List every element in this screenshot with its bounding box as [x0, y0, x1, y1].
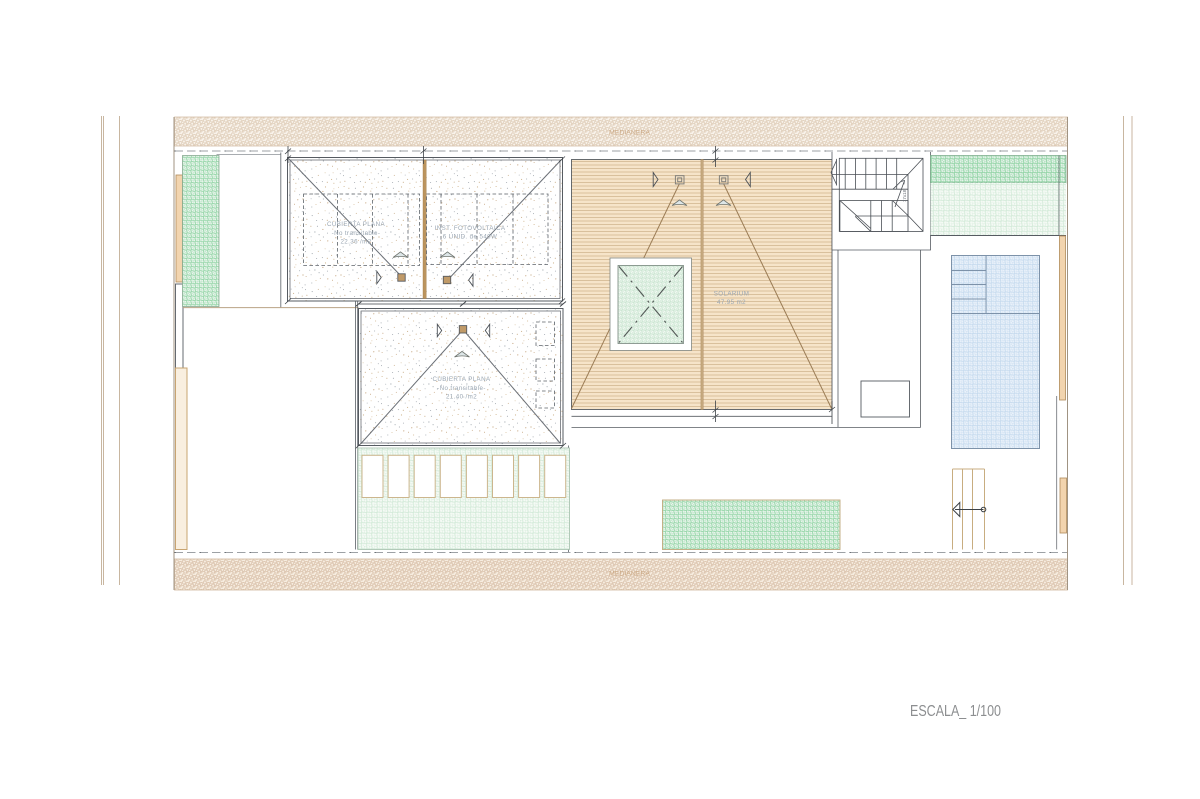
- svg-text:-No transitable-: -No transitable-: [437, 385, 486, 392]
- svg-text:22.36 /m2: 22.36 /m2: [340, 239, 371, 246]
- svg-text:MEDIANERA: MEDIANERA: [609, 130, 651, 137]
- svg-text:INST. FOTOVOLTAICA: INST. FOTOVOLTAICA: [435, 225, 506, 232]
- svg-text:MEDIANERA: MEDIANERA: [609, 571, 651, 578]
- svg-text:47.95 m2: 47.95 m2: [717, 299, 746, 306]
- svg-text:17x18: 17x18: [902, 189, 907, 202]
- svg-text:SOLARIUM: SOLARIUM: [714, 291, 750, 298]
- svg-text:6 UNID. de 540W: 6 UNID. de 540W: [443, 234, 498, 241]
- svg-text:-No transitable-: -No transitable-: [332, 230, 381, 237]
- svg-text:CUBIERTA PLANA: CUBIERTA PLANA: [327, 221, 385, 228]
- svg-text:CUBIERTA PLANA: CUBIERTA PLANA: [433, 376, 491, 383]
- svg-text:21.40 /m2: 21.40 /m2: [446, 394, 477, 401]
- svg-text:ESCALA_ 1/100: ESCALA_ 1/100: [910, 703, 1001, 720]
